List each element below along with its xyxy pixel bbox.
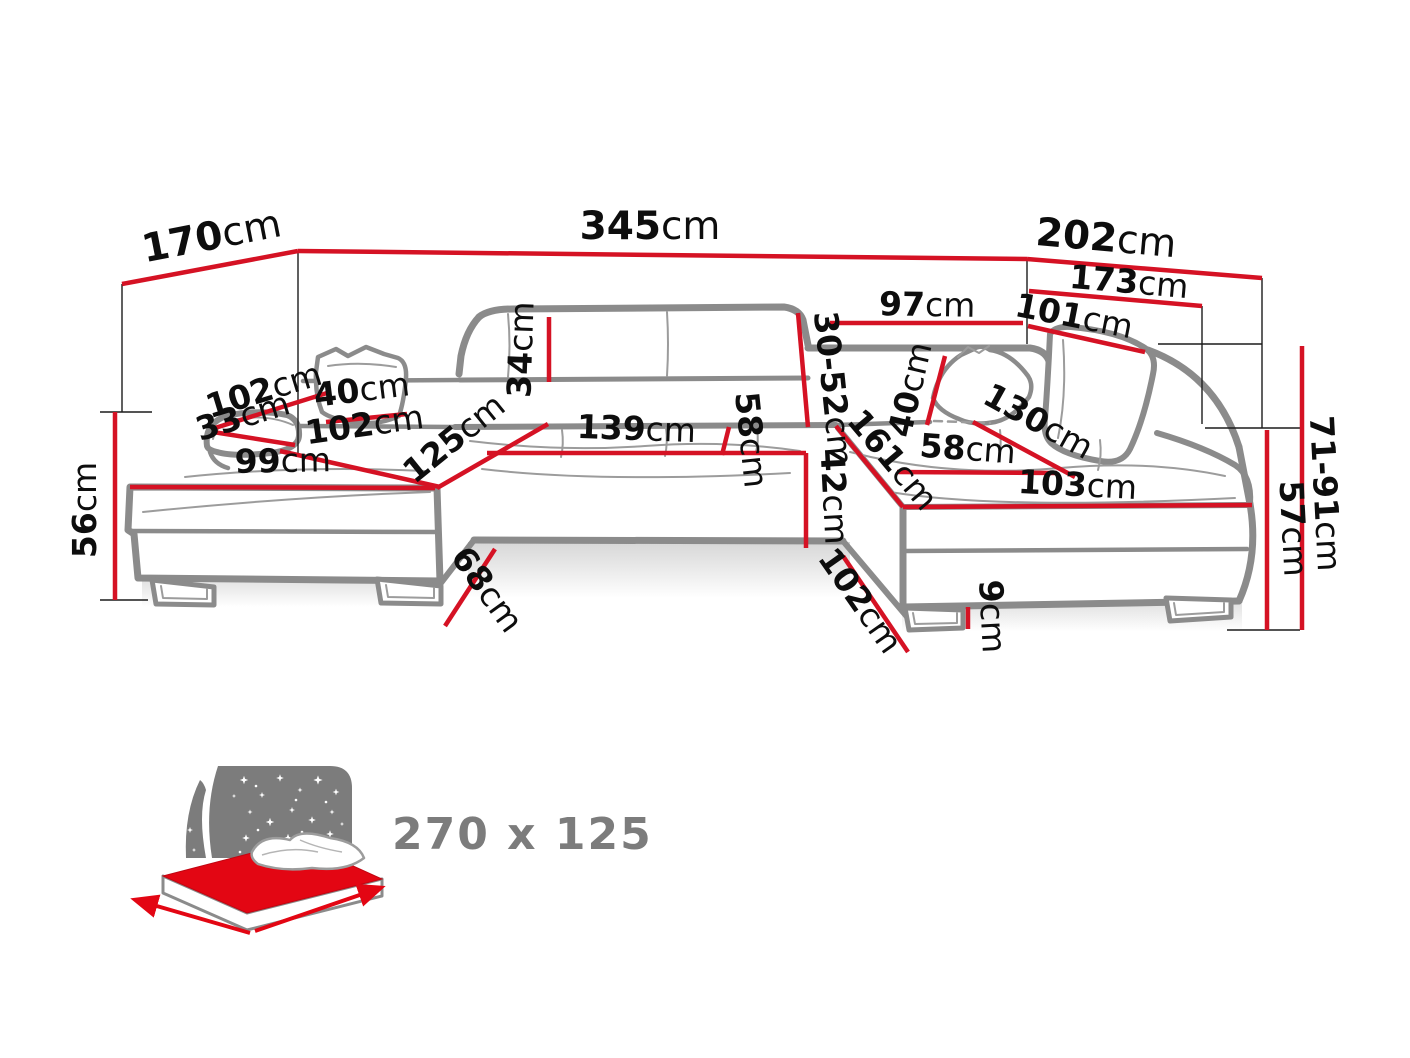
sofa-dimension-diagram: 170cm 345cm 202cm 173cm 97cm 101cm 30-52… (0, 0, 1410, 1058)
diagram-svg: 170cm 345cm 202cm 173cm 97cm 101cm 30-52… (0, 0, 1410, 1058)
dim-label-103: 103cm (1017, 462, 1138, 507)
right-armrest (1148, 350, 1253, 601)
dim-label-9: 9cm (971, 579, 1014, 654)
dim-label-30-52: 30-52cm (806, 309, 861, 468)
dim-label-34: 34cm (499, 301, 541, 399)
dim-line-99 (130, 487, 435, 488)
sleeper-function-icon: 270 x 125 (136, 766, 653, 933)
dim-label-202: 202cm (1034, 210, 1178, 267)
dim-label-170: 170cm (138, 201, 285, 272)
dim-label-42: 42cm (812, 447, 856, 545)
dim-label-40-right: 40cm (880, 338, 940, 441)
dim-label-97: 97cm (879, 284, 976, 325)
sleeping-area-label: 270 x 125 (392, 809, 653, 860)
dim-label-139: 139cm (576, 407, 696, 450)
dim-label-58-right: 58cm (918, 426, 1017, 472)
dim-label-99: 99cm (234, 440, 331, 481)
dim-label-57: 57cm (1271, 479, 1315, 577)
floor-shadows (142, 542, 1242, 632)
dim-label-56: 56cm (65, 462, 104, 558)
dim-line-345 (298, 251, 1027, 259)
dim-label-345: 345cm (580, 204, 721, 249)
dim-line-103 (903, 505, 1252, 507)
